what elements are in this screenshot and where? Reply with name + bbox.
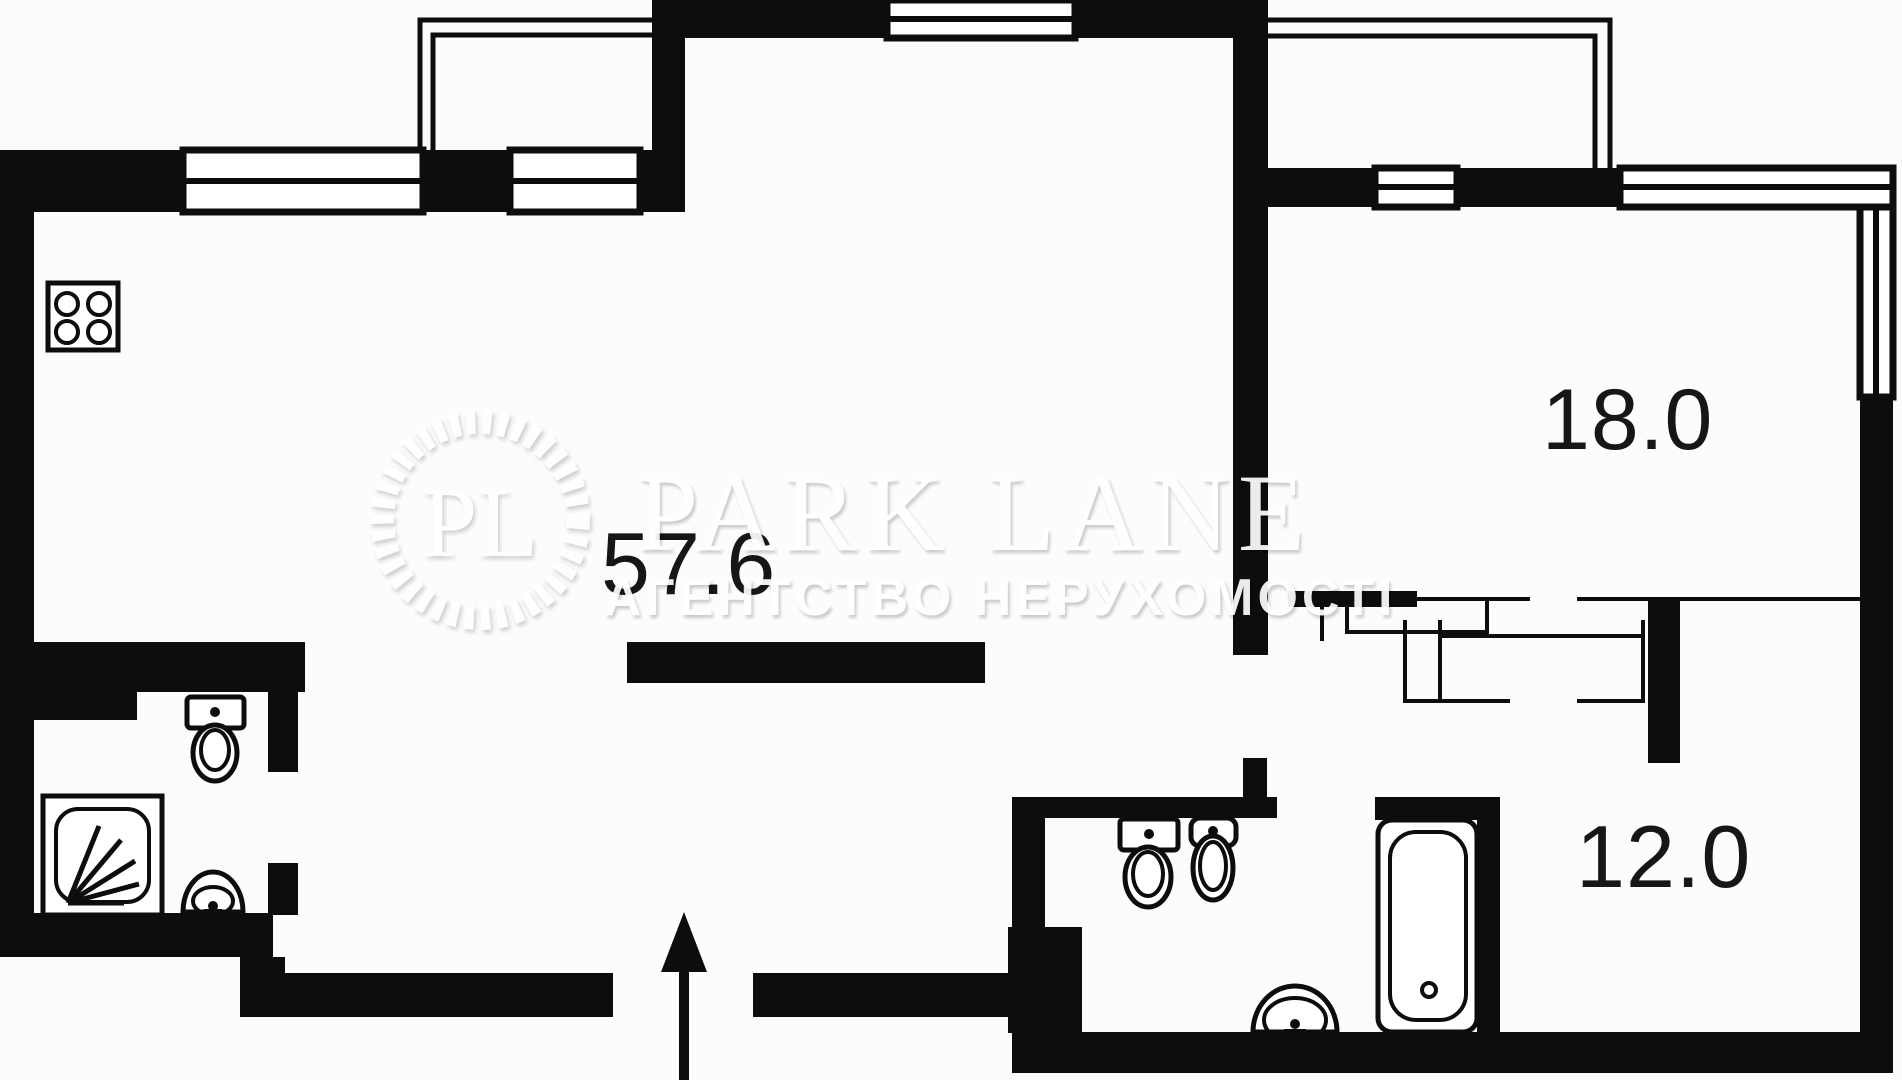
toilet-icon	[1120, 819, 1178, 907]
area-label-room: 12.0	[1576, 813, 1751, 901]
floor-plan-drawing	[0, 0, 1902, 1080]
balcony-outline	[420, 20, 1610, 168]
floor-plan: 57.6 18.0 12.0 PL PARK LANE АГЕНТСТВО НЕ…	[0, 0, 1902, 1080]
bathtub-icon	[1378, 820, 1477, 1032]
stove-icon	[48, 283, 118, 350]
sink-icon	[1253, 986, 1337, 1042]
bidet-icon	[1191, 818, 1236, 900]
entrance-arrow-icon	[661, 912, 707, 1080]
area-label-living-room: 57.6	[601, 520, 776, 608]
wardrobe-outline	[1322, 599, 1860, 703]
toilet-icon	[187, 697, 244, 781]
shower-icon	[43, 796, 162, 915]
area-label-bedroom: 18.0	[1542, 377, 1713, 463]
sink-icon	[183, 872, 243, 915]
